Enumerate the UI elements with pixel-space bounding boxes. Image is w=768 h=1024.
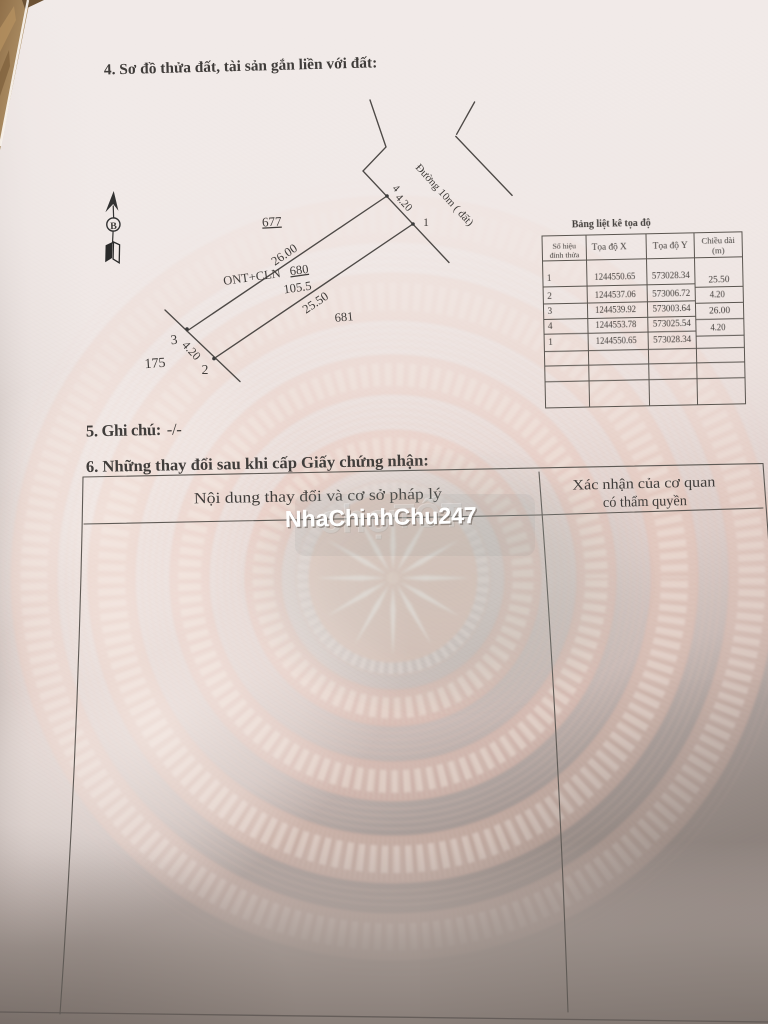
svg-text:680: 680: [289, 262, 310, 278]
svg-text:1244550.65: 1244550.65: [594, 271, 636, 282]
svg-text:Chiều dài: Chiều dài: [701, 235, 735, 246]
svg-text:25.50: 25.50: [708, 274, 730, 284]
svg-text:681: 681: [334, 309, 354, 325]
svg-text:1244553.78: 1244553.78: [595, 319, 637, 330]
svg-text:573028.34: 573028.34: [652, 270, 691, 281]
svg-text:26.00: 26.00: [709, 305, 731, 315]
svg-text:1: 1: [548, 337, 553, 347]
svg-text:Bảng liệt kê tọa độ: Bảng liệt kê tọa độ: [572, 217, 651, 231]
svg-text:Tọa độ X: Tọa độ X: [592, 241, 627, 253]
svg-text:Tọa độ Y: Tọa độ Y: [653, 240, 688, 252]
svg-text:677: 677: [262, 213, 283, 229]
svg-text:NhaChinhChu247: NhaChinhChu247: [285, 502, 477, 532]
svg-text:573006.72: 573006.72: [652, 288, 691, 299]
svg-text:1244537.06: 1244537.06: [595, 289, 637, 300]
svg-text:3: 3: [547, 306, 552, 316]
svg-text:đỉnh thửa: đỉnh thửa: [550, 250, 580, 260]
svg-text:2: 2: [547, 291, 552, 301]
svg-text:1244550.65: 1244550.65: [596, 335, 638, 346]
svg-text:1244539.92: 1244539.92: [595, 304, 637, 315]
svg-text:Số hiệu: Số hiệu: [552, 241, 576, 250]
svg-text:2: 2: [202, 362, 209, 377]
svg-text:573025.54: 573025.54: [653, 318, 692, 329]
svg-text:4.20: 4.20: [710, 322, 726, 332]
svg-text:4.20: 4.20: [710, 289, 726, 299]
svg-text:(m): (m): [712, 245, 725, 255]
svg-text:175: 175: [144, 356, 166, 372]
svg-text:573003.64: 573003.64: [652, 303, 691, 314]
svg-text:1: 1: [423, 217, 429, 229]
svg-text:1: 1: [547, 273, 552, 283]
svg-text:5. Ghi chú: -/-: 5. Ghi chú: -/-: [86, 420, 182, 441]
svg-text:4: 4: [548, 321, 553, 331]
svg-text:573028.34: 573028.34: [653, 334, 692, 345]
svg-text:B: B: [110, 221, 117, 232]
